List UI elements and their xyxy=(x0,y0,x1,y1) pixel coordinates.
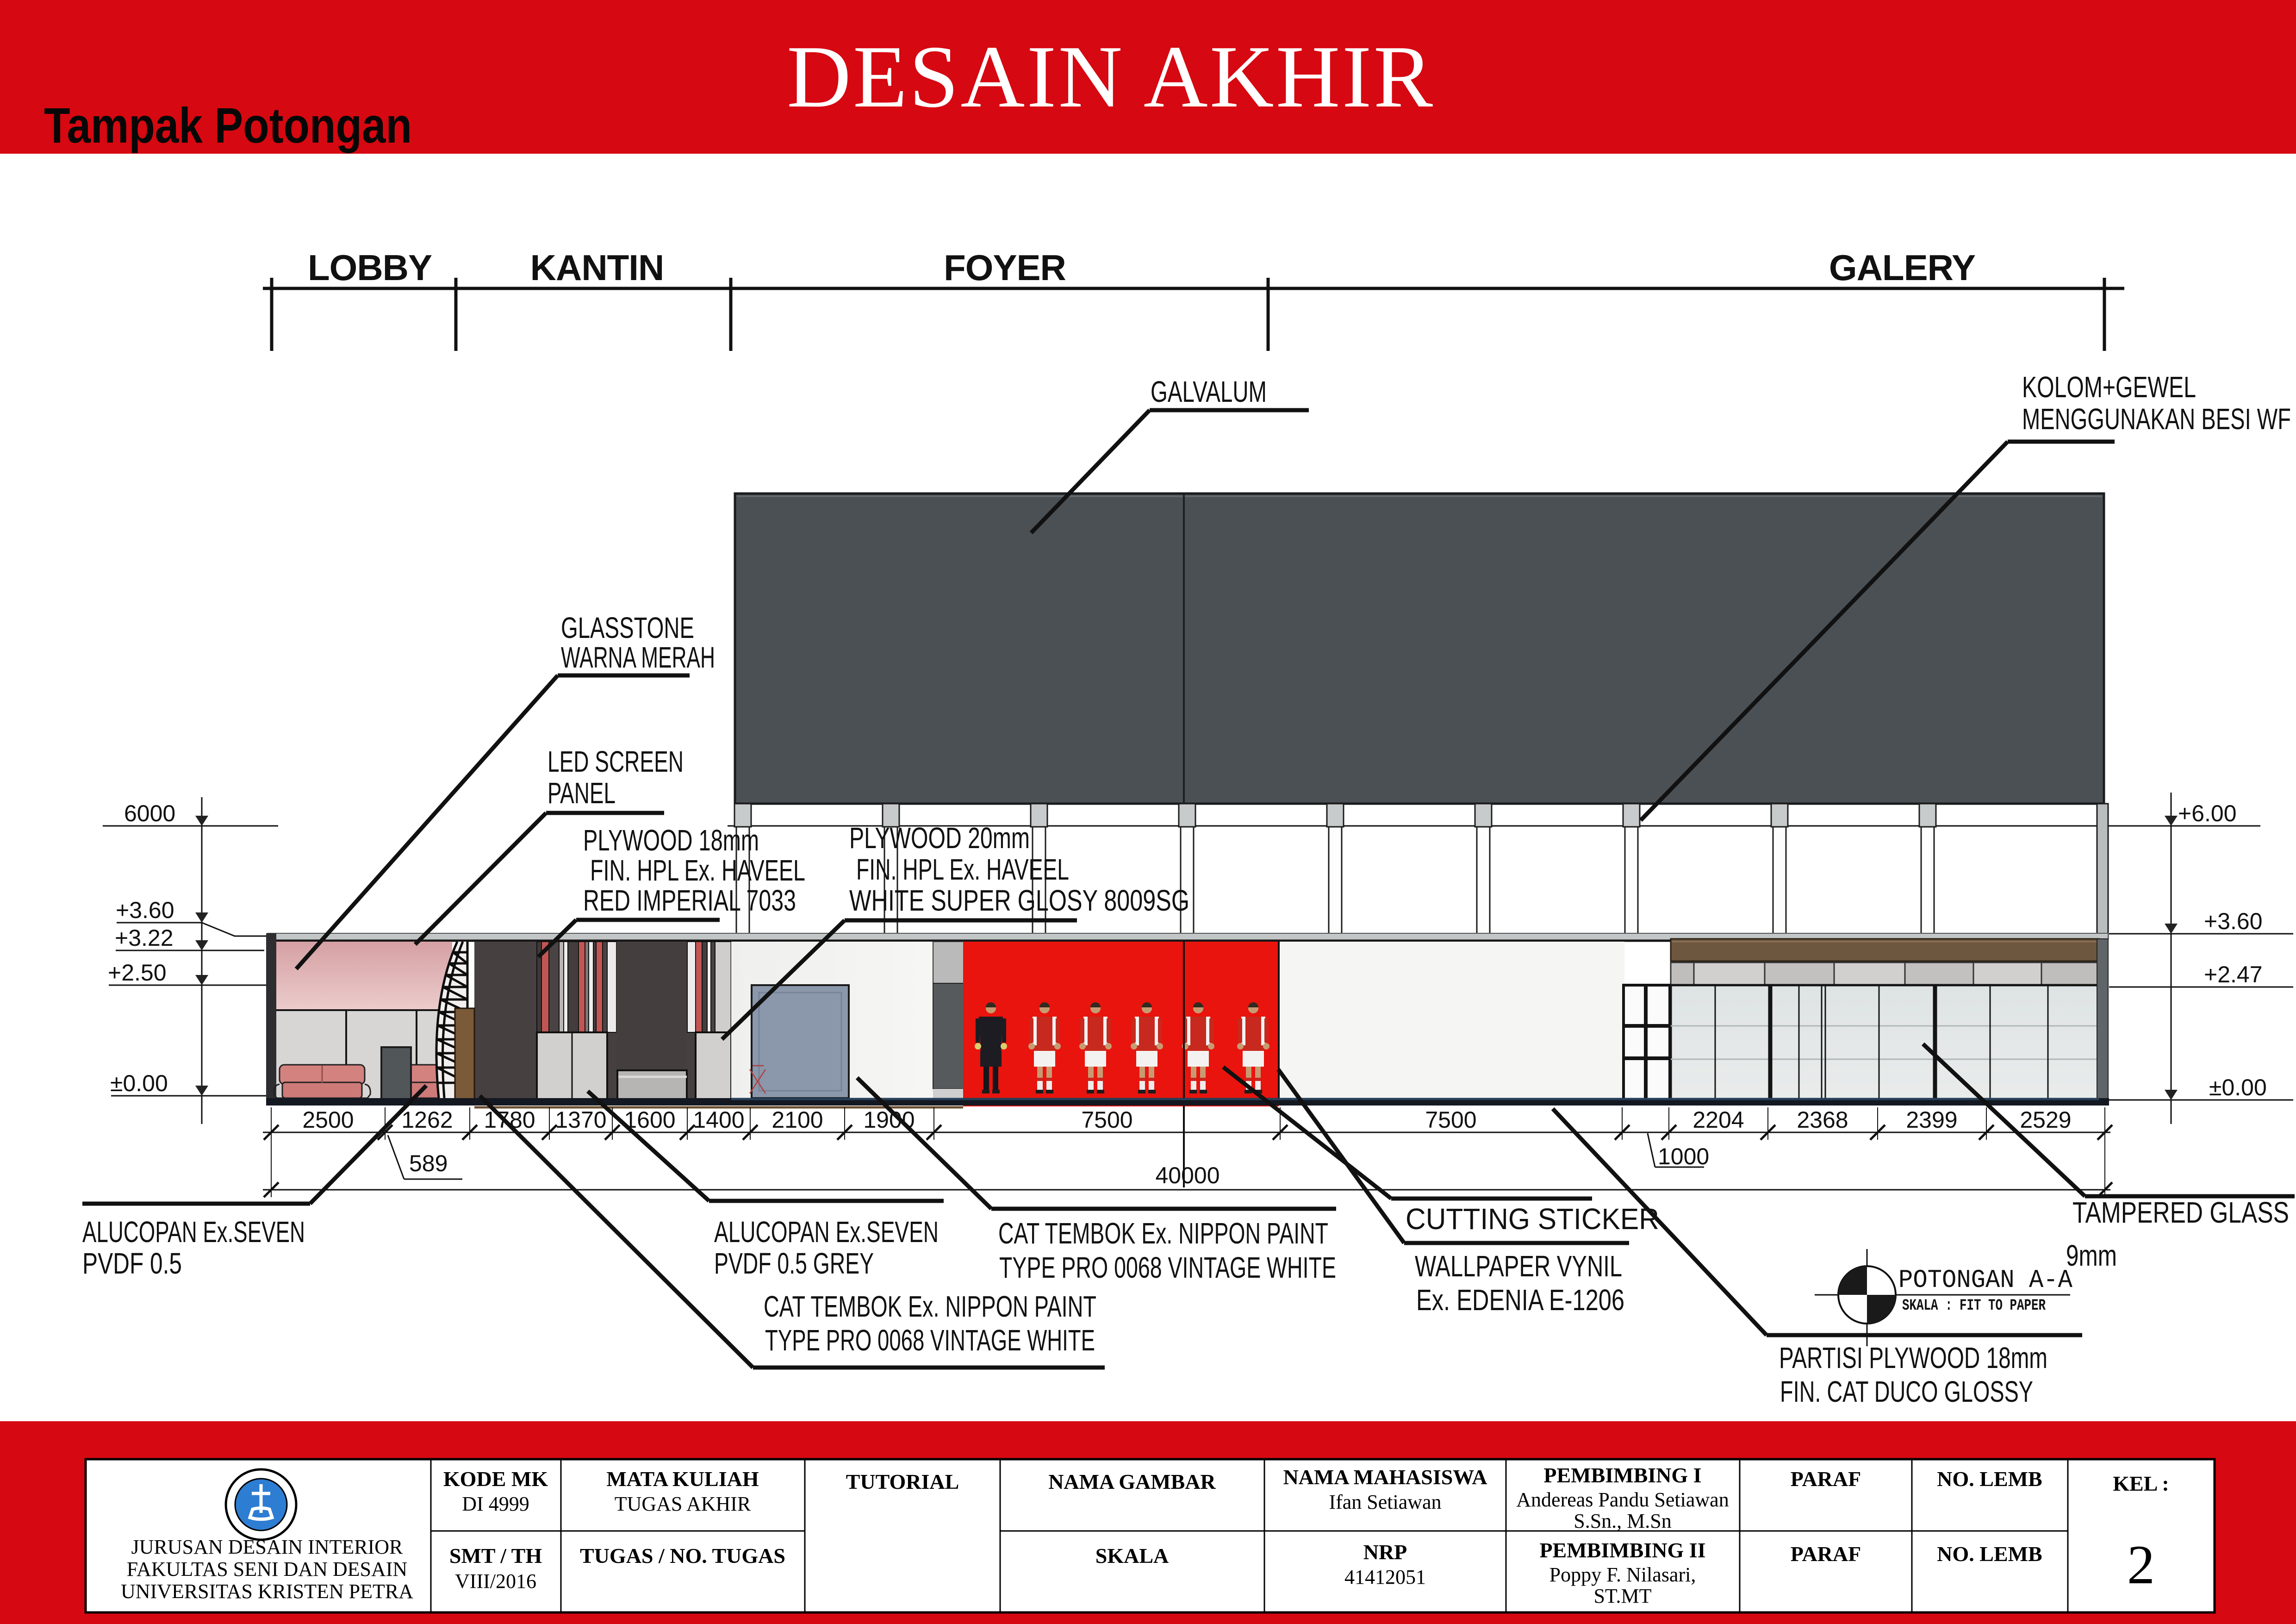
svg-text:2500: 2500 xyxy=(302,1107,354,1133)
svg-text:Poppy F. Nilasari,: Poppy F. Nilasari, xyxy=(1549,1563,1696,1586)
svg-text:KEL :: KEL : xyxy=(2113,1472,2169,1495)
svg-text:ST.MT: ST.MT xyxy=(1593,1585,1651,1607)
svg-text:RED IMPERIAL 7033: RED IMPERIAL 7033 xyxy=(583,884,796,917)
svg-text:TYPE PRO 0068 VINTAGE WHITE: TYPE PRO 0068 VINTAGE WHITE xyxy=(999,1251,1336,1284)
svg-text:PVDF 0.5 GREY: PVDF 0.5 GREY xyxy=(714,1247,874,1280)
svg-text:POTONGAN A-A: POTONGAN A-A xyxy=(1898,1265,2072,1295)
svg-text:TUTORIAL: TUTORIAL xyxy=(846,1470,959,1493)
svg-text:UNIVERSITAS KRISTEN PETRA: UNIVERSITAS KRISTEN PETRA xyxy=(121,1580,413,1603)
svg-text:Tampak Potongan: Tampak Potongan xyxy=(44,97,412,153)
svg-text:CAT TEMBOK Ex. NIPPON PAINT: CAT TEMBOK Ex. NIPPON PAINT xyxy=(764,1290,1096,1323)
svg-text:±0.00: ±0.00 xyxy=(110,1070,168,1096)
svg-text:6000: 6000 xyxy=(124,800,175,826)
svg-text:NAMA GAMBAR: NAMA GAMBAR xyxy=(1048,1470,1216,1493)
svg-text:PVDF 0.5: PVDF 0.5 xyxy=(82,1247,182,1280)
svg-text:2: 2 xyxy=(2127,1534,2155,1595)
svg-text:DESAIN AKHIR: DESAIN AKHIR xyxy=(787,27,1435,126)
svg-text:1400: 1400 xyxy=(693,1107,744,1133)
svg-text:SMT / TH: SMT / TH xyxy=(449,1544,542,1568)
svg-text:2529: 2529 xyxy=(2020,1107,2071,1133)
svg-text:WHITE SUPER GLOSY 8009SG: WHITE SUPER GLOSY 8009SG xyxy=(849,884,1189,917)
svg-text:ALUCOPAN Ex.SEVEN: ALUCOPAN Ex.SEVEN xyxy=(714,1215,939,1249)
svg-text:GALERY: GALERY xyxy=(1829,247,1975,288)
svg-text:TUGAS AKHIR: TUGAS AKHIR xyxy=(615,1493,751,1515)
svg-text:GLASSTONE: GLASSTONE xyxy=(561,611,694,644)
svg-text:41412051: 41412051 xyxy=(1344,1566,1426,1588)
svg-text:PARAF: PARAF xyxy=(1791,1467,1861,1491)
svg-text:FIN. HPL Ex. HAVEEL: FIN. HPL Ex. HAVEEL xyxy=(590,854,805,887)
svg-text:FIN. CAT DUCO GLOSSY: FIN. CAT DUCO GLOSSY xyxy=(1780,1375,2033,1408)
svg-text:40000: 40000 xyxy=(1155,1162,1220,1188)
svg-text:NO. LEMB: NO. LEMB xyxy=(1937,1542,2042,1566)
svg-text:PLYWOOD 18mm: PLYWOOD 18mm xyxy=(583,824,759,857)
svg-text:WARNA MERAH: WARNA MERAH xyxy=(561,641,715,674)
svg-text:ALUCOPAN Ex.SEVEN: ALUCOPAN Ex.SEVEN xyxy=(82,1215,305,1249)
svg-text:TAMPERED GLASS: TAMPERED GLASS xyxy=(2072,1196,2289,1229)
svg-text:NO. LEMB: NO. LEMB xyxy=(1937,1467,2042,1491)
svg-text:2100: 2100 xyxy=(772,1107,823,1133)
svg-text:SKALA: SKALA xyxy=(1095,1544,1169,1568)
svg-text:LED SCREEN: LED SCREEN xyxy=(548,745,684,778)
svg-text:±0.00: ±0.00 xyxy=(2209,1074,2267,1100)
svg-text:KODE MK: KODE MK xyxy=(443,1467,548,1491)
svg-text:589: 589 xyxy=(409,1150,448,1176)
svg-text:Andereas Pandu Setiawan: Andereas Pandu Setiawan xyxy=(1516,1488,1729,1511)
svg-text:+3.60: +3.60 xyxy=(116,897,174,923)
svg-text:MATA KULIAH: MATA KULIAH xyxy=(606,1467,759,1491)
svg-text:CUTTING STICKER: CUTTING STICKER xyxy=(1406,1202,1659,1236)
svg-text:PEMBIMBING II: PEMBIMBING II xyxy=(1539,1538,1705,1562)
svg-text:VIII/2016: VIII/2016 xyxy=(455,1570,536,1593)
svg-text:1000: 1000 xyxy=(1658,1143,1709,1169)
svg-text:KANTIN: KANTIN xyxy=(530,247,664,288)
svg-text:1262: 1262 xyxy=(401,1107,453,1133)
svg-text:+6.00: +6.00 xyxy=(2178,800,2237,826)
svg-text:+2.47: +2.47 xyxy=(2204,962,2263,987)
svg-text:TUGAS / NO. TUGAS: TUGAS / NO. TUGAS xyxy=(580,1544,785,1568)
svg-text:2368: 2368 xyxy=(1797,1107,1848,1133)
svg-text:NAMA MAHASISWA: NAMA MAHASISWA xyxy=(1283,1465,1487,1489)
svg-text:Ex. EDENIA E-1206: Ex. EDENIA E-1206 xyxy=(1416,1283,1624,1317)
svg-text:FOYER: FOYER xyxy=(944,247,1066,288)
svg-text:PARAF: PARAF xyxy=(1791,1542,1861,1566)
svg-text:1780: 1780 xyxy=(484,1107,535,1133)
svg-text:+2.50: +2.50 xyxy=(108,960,167,986)
svg-text:1370: 1370 xyxy=(555,1107,606,1133)
svg-text:FIN. HPL Ex. HAVEEL: FIN. HPL Ex. HAVEEL xyxy=(856,853,1069,886)
svg-text:CAT TEMBOK Ex. NIPPON PAINT: CAT TEMBOK Ex. NIPPON PAINT xyxy=(998,1217,1328,1250)
svg-text:DI 4999: DI 4999 xyxy=(462,1493,529,1515)
svg-text:Ifan Setiawan: Ifan Setiawan xyxy=(1329,1491,1441,1513)
svg-text:S.Sn., M.Sn: S.Sn., M.Sn xyxy=(1574,1510,1672,1532)
svg-text:PEMBIMBING I: PEMBIMBING I xyxy=(1543,1463,1701,1487)
svg-text:LOBBY: LOBBY xyxy=(308,247,432,288)
svg-text:2204: 2204 xyxy=(1692,1107,1744,1133)
svg-text:PLYWOOD 20mm: PLYWOOD 20mm xyxy=(849,821,1030,855)
svg-text:+3.60: +3.60 xyxy=(2204,908,2263,934)
svg-text:GALVALUM: GALVALUM xyxy=(1151,375,1267,408)
svg-text:KOLOM+GEWEL: KOLOM+GEWEL xyxy=(2022,370,2196,404)
svg-text:7500: 7500 xyxy=(1081,1107,1132,1133)
svg-text:TYPE PRO 0068 VINTAGE WHITE: TYPE PRO 0068 VINTAGE WHITE xyxy=(765,1324,1095,1357)
svg-text:9mm: 9mm xyxy=(2066,1239,2117,1272)
svg-text:WALLPAPER VYNIL: WALLPAPER VYNIL xyxy=(1415,1249,1622,1283)
svg-text:2399: 2399 xyxy=(1906,1107,1957,1133)
svg-text:7500: 7500 xyxy=(1425,1107,1476,1133)
svg-text:MENGGUNAKAN BESI WF: MENGGUNAKAN BESI WF xyxy=(2022,402,2291,436)
svg-text:+3.22: +3.22 xyxy=(115,925,174,951)
svg-text:FAKULTAS SENI DAN DESAIN: FAKULTAS SENI DAN DESAIN xyxy=(127,1558,407,1580)
svg-text:PARTISI PLYWOOD 18mm: PARTISI PLYWOOD 18mm xyxy=(1779,1341,2047,1374)
svg-text:NRP: NRP xyxy=(1363,1540,1407,1564)
svg-text:PANEL: PANEL xyxy=(548,776,616,810)
svg-text:JURUSAN DESAIN INTERIOR: JURUSAN DESAIN INTERIOR xyxy=(131,1536,403,1558)
svg-text:SKALA : FIT TO PAPER: SKALA : FIT TO PAPER xyxy=(1902,1297,2046,1315)
